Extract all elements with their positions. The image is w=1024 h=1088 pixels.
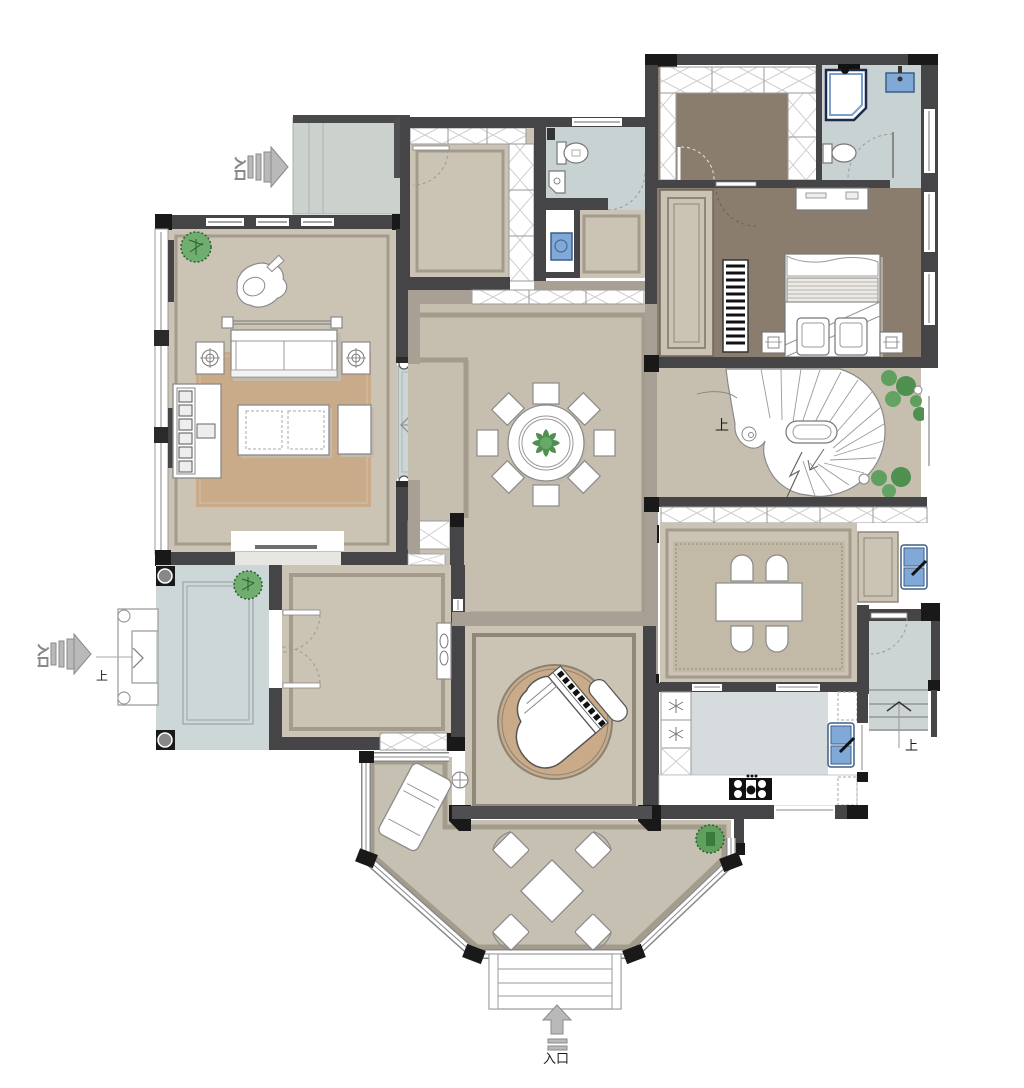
svg-text:入口: 入口 [36,644,50,668]
svg-text:入口: 入口 [233,157,247,181]
svg-text:上: 上 [96,669,108,683]
svg-text:入口: 入口 [543,1051,569,1066]
svg-text:上: 上 [905,738,918,753]
svg-text:上: 上 [715,417,729,433]
